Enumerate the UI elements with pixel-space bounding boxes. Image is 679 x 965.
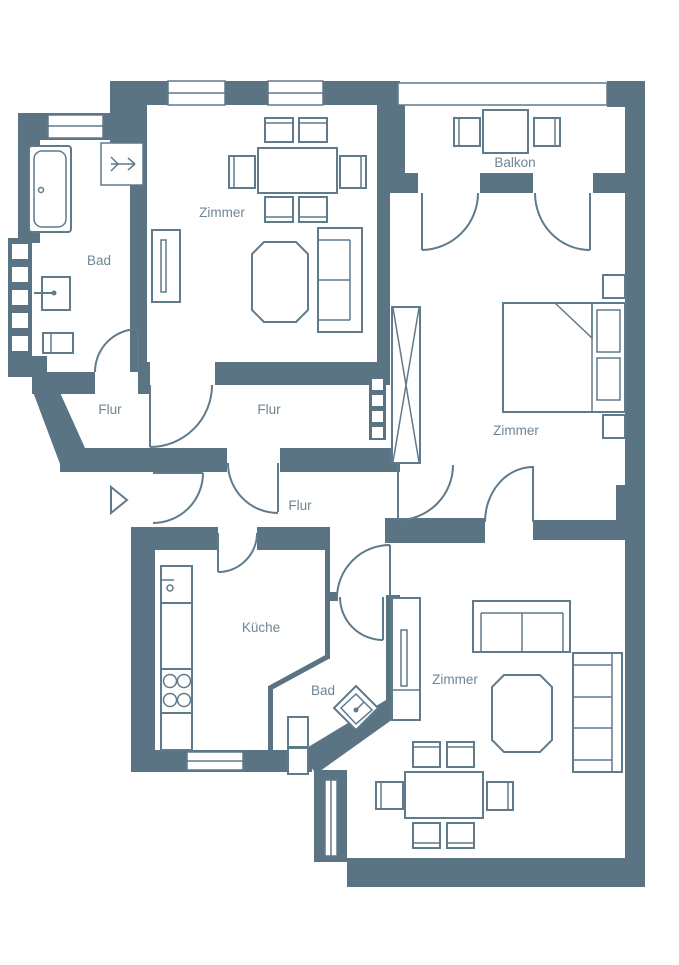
door-balcony-left — [422, 193, 478, 250]
wall-right-bump — [616, 485, 625, 540]
bathtub — [29, 146, 71, 232]
floorplan-drawing: Zimmer Bad Balkon Zimmer Flur Flur Flur … — [0, 0, 679, 960]
bad-top-left-fixtures — [29, 143, 143, 353]
door-bedroom-main — [485, 466, 533, 522]
wall-kitchen-top-a — [155, 527, 218, 550]
label-zimmer-bedroom: Zimmer — [493, 423, 539, 438]
label-balkon: Balkon — [494, 155, 535, 170]
dining-table-tl — [258, 148, 337, 193]
wall-balcony-mid-pillar — [480, 173, 533, 193]
cabinet-living — [392, 598, 420, 720]
sofa-two-seat — [473, 601, 570, 652]
wall-flur-band-right — [280, 448, 400, 472]
balcony-table — [483, 110, 528, 153]
wall-right-outer — [625, 105, 645, 887]
wall-balcony-left — [382, 105, 405, 193]
door-bedroom-pocket — [398, 465, 453, 520]
balcony-chair-left — [454, 118, 480, 146]
label-kueche: Küche — [242, 620, 280, 635]
label-bad-top-left: Bad — [87, 253, 111, 268]
living-room-furniture — [376, 598, 622, 848]
kitchen-fixtures — [161, 566, 192, 750]
vent-shaft — [101, 143, 143, 185]
floorplan-canvas: Zimmer Bad Balkon Zimmer Flur Flur Flur … — [0, 0, 679, 960]
wall-top-right-corner — [607, 81, 645, 107]
kitchen-sink-unit — [161, 566, 192, 603]
label-flur-west: Flur — [98, 402, 122, 417]
label-zimmer-top-left: Zimmer — [199, 205, 245, 220]
balcony-railing — [398, 83, 607, 105]
wardrobe — [392, 307, 420, 463]
door-bad-small — [340, 597, 383, 640]
label-flur-south: Flur — [288, 498, 312, 513]
label-flur-center: Flur — [257, 402, 281, 417]
wall-bad-bottom-a — [32, 372, 95, 394]
toilet-small-tank — [288, 717, 308, 747]
label-bad-small: Bad — [311, 683, 335, 698]
kitchen-counter-lower — [161, 713, 192, 750]
wall-zimmer-bottom-b — [215, 362, 390, 385]
nightstand-top — [603, 275, 625, 298]
toilet-small-bowl — [288, 748, 308, 774]
door-zimmer-top-left — [150, 385, 212, 447]
wall-kitchen-top-b — [257, 527, 330, 550]
wall-zimmer-bottom-a — [140, 362, 150, 385]
zimmer-top-left-furniture — [152, 118, 366, 332]
sofa-tl — [318, 228, 362, 332]
toilet-bad — [43, 333, 73, 353]
wall-bedroom-bottom-left — [385, 518, 485, 543]
nightstand-bottom — [603, 415, 625, 438]
sofa-right — [573, 653, 622, 772]
wall-bedroom-bottom-right — [533, 520, 616, 540]
door-living-room — [337, 545, 390, 598]
door-balcony-right — [535, 193, 590, 250]
wall-flur-band-left — [60, 448, 227, 472]
kitchen-counter — [161, 603, 192, 669]
wall-living-bottom — [347, 858, 645, 887]
coffee-table-living — [492, 675, 552, 752]
wall-top-left-corner — [110, 81, 147, 143]
door-kitchen — [218, 533, 257, 572]
wall-bad-small-west-thin — [268, 686, 273, 752]
kitchen-stove — [161, 669, 192, 713]
dining-table-living — [405, 772, 483, 818]
wall-balcony-left-pillar — [405, 173, 418, 193]
label-zimmer-living: Zimmer — [432, 672, 478, 687]
door-flur-center — [228, 463, 278, 513]
door-entrance — [153, 473, 203, 523]
entrance-direction-icon — [111, 487, 127, 513]
sink-bad-tap-dot — [52, 291, 57, 296]
wall-balcony-right-pillar — [593, 173, 625, 193]
bed — [503, 303, 625, 412]
coffee-table-tl — [252, 242, 308, 322]
balcony-chair-right — [534, 118, 560, 146]
balkon-furniture — [454, 110, 560, 153]
wall-kitchen-west — [131, 527, 155, 772]
